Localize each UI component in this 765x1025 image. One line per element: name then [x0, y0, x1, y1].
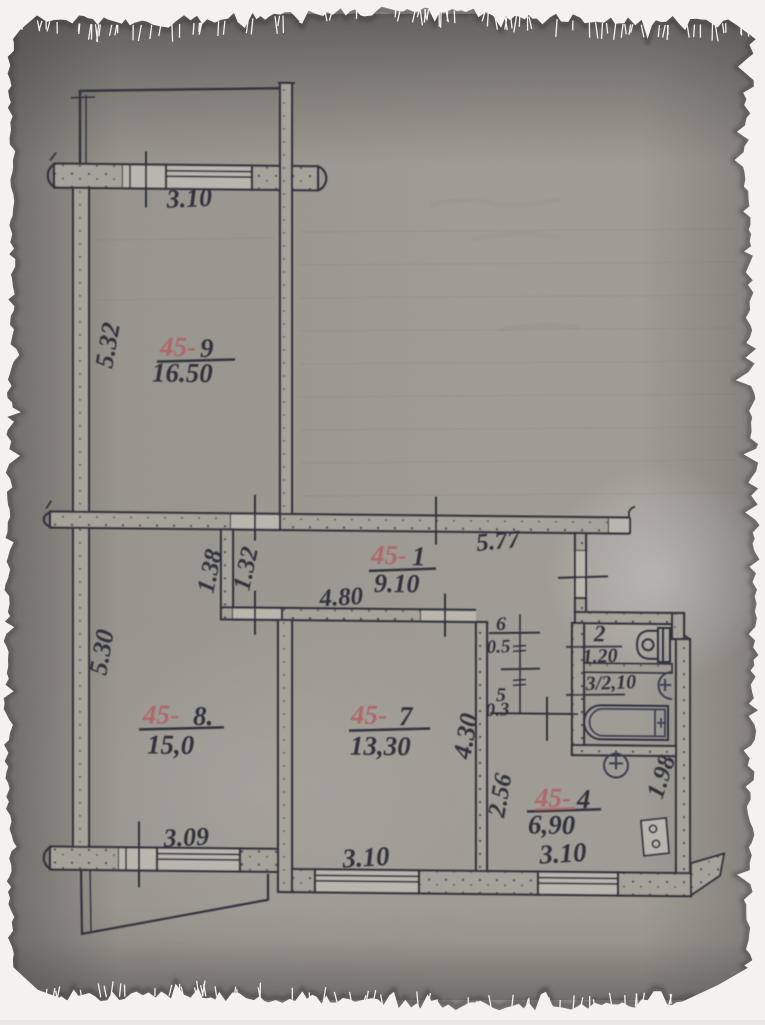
svg-text:7: 7	[399, 701, 414, 731]
svg-text:6: 6	[496, 613, 506, 635]
svg-text:6,90: 6,90	[528, 810, 576, 840]
svg-text:45-: 45-	[142, 699, 179, 729]
svg-text:3.10: 3.10	[165, 183, 213, 214]
svg-text:45-: 45-	[370, 540, 407, 570]
svg-text:9.10: 9.10	[374, 569, 419, 598]
svg-text:2: 2	[593, 621, 605, 646]
svg-text:13,30: 13,30	[350, 731, 411, 762]
svg-text:3/2,10: 3/2,10	[584, 671, 637, 695]
svg-text:3.09: 3.09	[162, 822, 210, 853]
svg-text:3.10: 3.10	[340, 841, 391, 874]
svg-text:1: 1	[412, 541, 425, 571]
svg-text:0.3: 0.3	[485, 699, 510, 721]
svg-text:1.20: 1.20	[582, 645, 618, 668]
svg-text:45-: 45-	[350, 700, 387, 730]
svg-text:15,0: 15,0	[147, 730, 195, 760]
svg-text:5.77: 5.77	[475, 526, 523, 557]
svg-text:16.50: 16.50	[152, 358, 213, 389]
svg-text:0.5: 0.5	[486, 636, 511, 658]
svg-text:4.80: 4.80	[318, 583, 365, 613]
svg-text:3.10: 3.10	[537, 837, 588, 870]
